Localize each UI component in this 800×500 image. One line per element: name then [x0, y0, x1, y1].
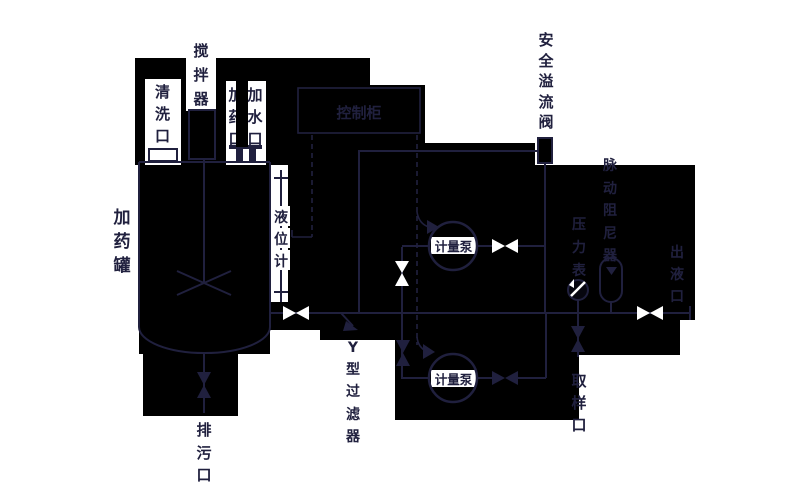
y-strainer-label: Y型过滤器	[335, 337, 371, 448]
dosing-system-diagram: 加药罐 清洗口 搅拌器 加药口 加水口 控制柜 液位计 排污口 Y型过滤器 安全…	[0, 0, 800, 500]
outlet-port-label: 出液口	[659, 242, 695, 308]
agitator-label: 搅拌器	[183, 39, 219, 111]
pressure-gauge-label: 压力表	[562, 214, 596, 283]
tank-label: 加药罐	[105, 206, 139, 278]
safety-relief-valve-label: 安全溢流阀	[528, 30, 564, 133]
level-gauge-label: 液位计	[272, 207, 290, 273]
metering-pump-2-label: 计量泵	[431, 370, 476, 387]
agitator-motor-icon	[189, 110, 215, 159]
cleaning-port-label: 清洗口	[144, 81, 181, 147]
metering-pump-1-label: 计量泵	[431, 237, 476, 254]
label-overlap-strip	[236, 81, 248, 147]
sampling-port-label: 取样口	[561, 370, 597, 436]
pulsation-damper-label: 脉动阻尼器	[592, 155, 628, 268]
drain-port-label: 排污口	[187, 419, 221, 487]
control-cabinet-label: 控制柜	[328, 102, 390, 123]
